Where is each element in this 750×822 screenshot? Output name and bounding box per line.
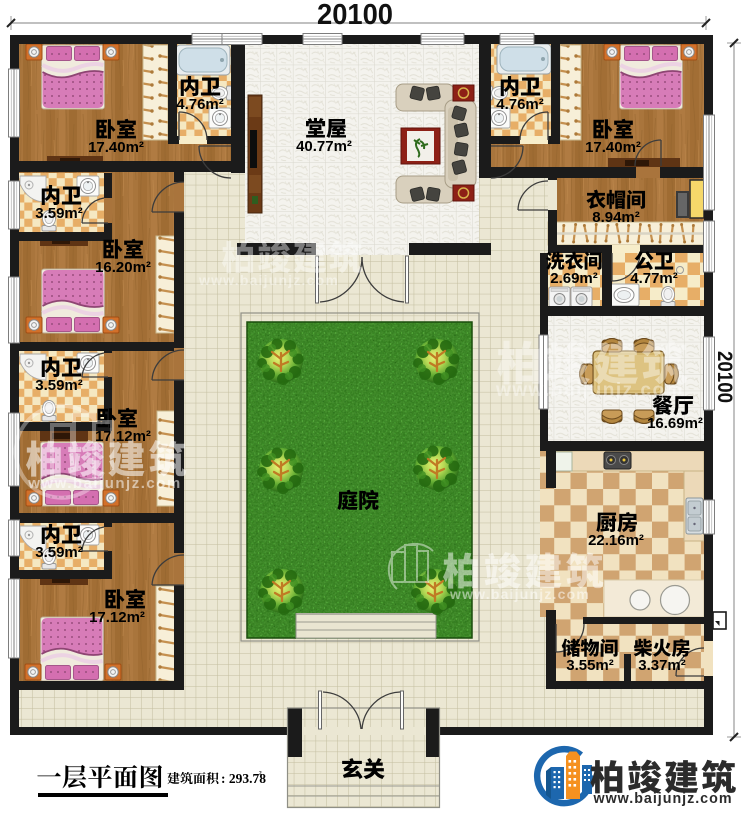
svg-text:3.59m²: 3.59m² — [35, 205, 83, 222]
svg-text:17.40m²: 17.40m² — [585, 139, 641, 156]
svg-text:22.16m²: 22.16m² — [588, 532, 644, 549]
svg-text:17.12m²: 17.12m² — [89, 609, 145, 626]
svg-text:3.37m²: 3.37m² — [638, 657, 686, 674]
svg-text:16.20m²: 16.20m² — [95, 259, 151, 276]
svg-text:4.77m²: 4.77m² — [630, 270, 678, 287]
svg-text:17.40m²: 17.40m² — [88, 139, 144, 156]
svg-text:www.baijunjz.com: www.baijunjz.com — [198, 272, 339, 288]
svg-text:3.55m²: 3.55m² — [566, 657, 614, 674]
svg-text:17.12m²: 17.12m² — [95, 428, 151, 445]
svg-text:3.59m²: 3.59m² — [35, 377, 83, 394]
svg-text:www.baijunjz.com: www.baijunjz.com — [27, 475, 181, 492]
svg-text:16.69m²: 16.69m² — [647, 415, 703, 432]
svg-text:4.76m²: 4.76m² — [176, 96, 224, 113]
svg-text:20100: 20100 — [713, 351, 736, 403]
svg-text:2.69m²: 2.69m² — [550, 270, 598, 287]
svg-text:²: ² — [259, 769, 262, 779]
svg-text:8.94m²: 8.94m² — [592, 209, 640, 226]
svg-text:4.76m²: 4.76m² — [496, 96, 544, 113]
svg-text:www.baijunjz.com: www.baijunjz.com — [593, 791, 733, 807]
svg-text:3.59m²: 3.59m² — [35, 544, 83, 561]
svg-text:40.77m²: 40.77m² — [296, 138, 352, 155]
svg-text:www.baijunjz.com: www.baijunjz.com — [495, 380, 684, 401]
svg-text:20100: 20100 — [317, 0, 393, 31]
svg-text:www.baijunjz.com: www.baijunjz.com — [449, 586, 590, 602]
